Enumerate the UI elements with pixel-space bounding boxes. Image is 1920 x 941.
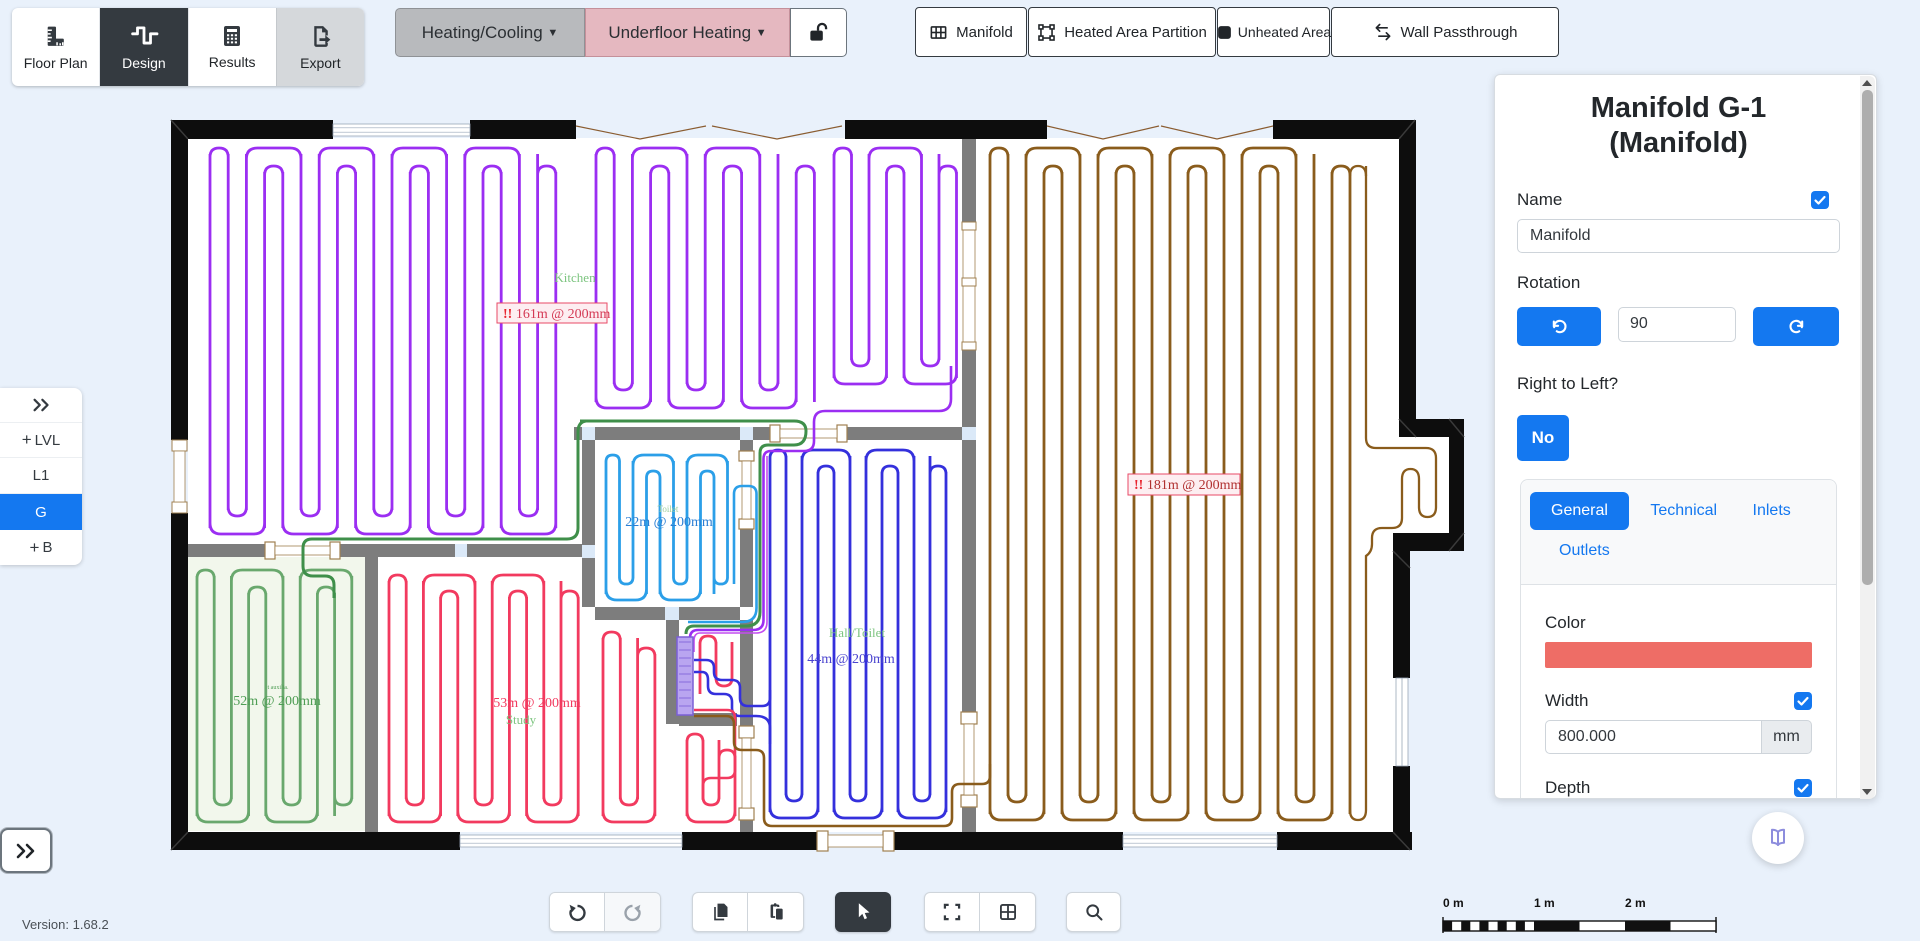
svg-text:Study: Study — [506, 712, 537, 727]
svg-text:44m @ 200mm: 44m @ 200mm — [807, 652, 895, 667]
svg-text:t auxilia.: t auxilia. — [268, 685, 289, 691]
svg-text:1 m: 1 m — [1534, 896, 1555, 910]
svg-text:0 m: 0 m — [1443, 896, 1464, 910]
svg-text:!! 161m @ 200mm: !! 161m @ 200mm — [503, 307, 611, 322]
svg-text:Kitchen: Kitchen — [554, 270, 596, 285]
svg-text:Hall/Toilet: Hall/Toilet — [829, 625, 886, 640]
svg-text:53m @ 200mm: 53m @ 200mm — [493, 696, 581, 711]
svg-text:22m @ 200mm: 22m @ 200mm — [625, 515, 713, 530]
svg-text:!! 181m @ 200mm: !! 181m @ 200mm — [1134, 478, 1242, 493]
svg-text:52m @ 200mm: 52m @ 200mm — [233, 694, 321, 709]
svg-text:2 m: 2 m — [1625, 896, 1646, 910]
svg-text:Toilet: Toilet — [658, 504, 679, 514]
